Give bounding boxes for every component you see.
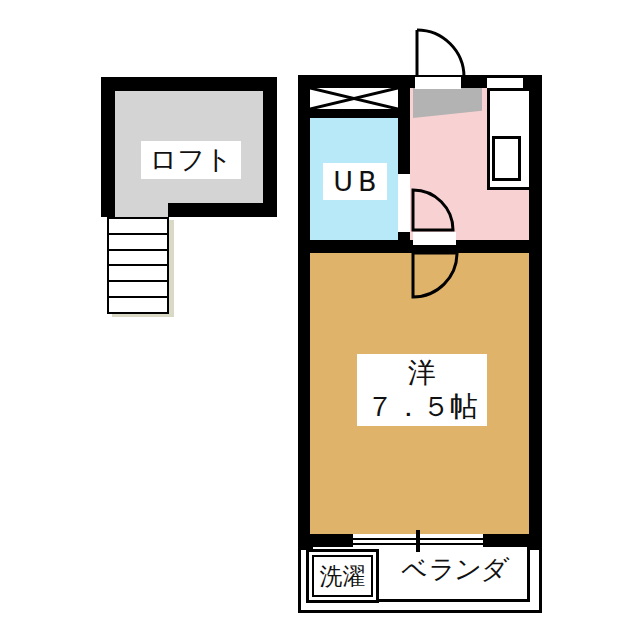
entrance-door-arc [417, 30, 464, 77]
loft-stair-opening [115, 201, 168, 217]
closet-crossbox [310, 88, 398, 109]
floor-plan-canvas: ロフト UB 洋 ７．５帖 洗濯 ベランダ [0, 0, 640, 640]
stair-step [109, 298, 167, 312]
veranda-label: ベランダ [382, 551, 527, 587]
entrance-door-opening [415, 77, 461, 89]
unit-bath-label: UB [323, 163, 387, 200]
laundry-label: 洗濯 [312, 555, 373, 597]
stairs [107, 217, 169, 314]
main-room-size: ７．５帖 [366, 390, 478, 424]
stair-step [109, 266, 167, 282]
loft-room-label: ロフト [141, 141, 241, 179]
main-room-type: 洋 [408, 356, 436, 390]
stair-step [109, 282, 167, 298]
kitchen-sink [492, 136, 521, 181]
stair-step [109, 219, 167, 235]
kitchen-window [487, 78, 523, 88]
main-room-label: 洋 ７．５帖 [357, 354, 487, 426]
window-center-mark [416, 530, 420, 552]
stair-step [109, 235, 167, 251]
laundry-machine-space: 洗濯 [306, 549, 379, 603]
unit-bath-door-opening [398, 174, 410, 232]
stair-step [109, 251, 167, 267]
main-room-door-opening [413, 232, 456, 245]
